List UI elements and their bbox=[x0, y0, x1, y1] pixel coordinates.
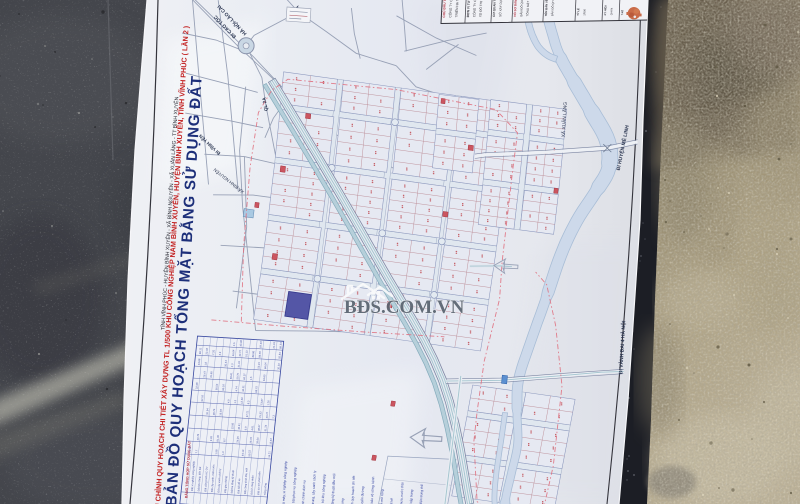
svg-text:87.49: 87.49 bbox=[259, 341, 263, 348]
svg-text:66.04: 66.04 bbox=[263, 362, 267, 369]
svg-text:16.93: 16.93 bbox=[218, 408, 222, 415]
svg-text:59.75: 59.75 bbox=[235, 372, 239, 379]
svg-text:94.19: 94.19 bbox=[241, 449, 245, 456]
svg-text:KÝ HIỆU: KÝ HIỆU bbox=[604, 5, 607, 16]
svg-text:42.72: 42.72 bbox=[238, 349, 242, 356]
svg-text:39.64: 39.64 bbox=[255, 437, 259, 444]
svg-text:43.96: 43.96 bbox=[239, 339, 243, 346]
svg-text:13.59: 13.59 bbox=[240, 397, 244, 404]
svg-text:26.76: 26.76 bbox=[249, 436, 253, 443]
svg-text:4.61: 4.61 bbox=[250, 425, 254, 431]
svg-text:1/500: 1/500 bbox=[582, 8, 586, 15]
svg-text:89.61: 89.61 bbox=[229, 372, 233, 379]
svg-text:73.87: 73.87 bbox=[260, 398, 264, 405]
svg-text:75.93: 75.93 bbox=[258, 411, 262, 418]
svg-text:35.33: 35.33 bbox=[276, 363, 280, 370]
svg-text:29.78: 29.78 bbox=[196, 433, 200, 440]
svg-text:9.93: 9.93 bbox=[209, 435, 213, 441]
svg-text:31.60: 31.60 bbox=[209, 371, 213, 378]
svg-text:1.26: 1.26 bbox=[266, 400, 270, 406]
svg-text:28.76: 28.76 bbox=[212, 408, 216, 415]
svg-text:31.01: 31.01 bbox=[237, 360, 241, 367]
svg-text:20.94: 20.94 bbox=[205, 408, 209, 415]
svg-text:98.07: 98.07 bbox=[257, 424, 261, 431]
svg-text:4.74: 4.74 bbox=[234, 386, 238, 392]
svg-text:13.06: 13.06 bbox=[230, 422, 234, 429]
svg-text:32.98: 32.98 bbox=[195, 382, 199, 389]
svg-text:86.55: 86.55 bbox=[258, 350, 262, 357]
svg-text:QH-04: QH-04 bbox=[610, 7, 613, 15]
svg-text:1.58: 1.58 bbox=[214, 449, 218, 455]
svg-text:92.84: 92.84 bbox=[277, 352, 281, 359]
svg-text:24.05: 24.05 bbox=[235, 436, 239, 443]
svg-text:23.27: 23.27 bbox=[265, 411, 269, 418]
svg-text:T.KẾ: T.KẾ bbox=[621, 9, 624, 15]
svg-text:51.13: 51.13 bbox=[244, 350, 248, 357]
svg-text:50.44: 50.44 bbox=[223, 360, 227, 367]
svg-text:44.31: 44.31 bbox=[241, 385, 245, 392]
svg-text:BĐS.COM.VN: BĐS.COM.VN bbox=[344, 297, 465, 318]
svg-text:56.52: 56.52 bbox=[214, 383, 218, 390]
svg-text:45.91: 45.91 bbox=[237, 423, 241, 430]
svg-text:88.75: 88.75 bbox=[254, 385, 258, 392]
svg-text:TÊN BẢN VẼ: TÊN BẢN VẼ bbox=[543, 0, 549, 16]
svg-text:92.16: 92.16 bbox=[200, 394, 204, 401]
svg-text:Tổng cộng: Tổng cộng bbox=[263, 482, 268, 495]
svg-text:63.37: 63.37 bbox=[242, 373, 246, 380]
svg-text:97.21: 97.21 bbox=[245, 410, 249, 417]
svg-text:BẢN ĐỒ QH: BẢN ĐỒ QH bbox=[549, 0, 555, 16]
svg-text:15.63: 15.63 bbox=[269, 438, 273, 445]
svg-text:51.24: 51.24 bbox=[263, 424, 267, 431]
svg-text:22.33: 22.33 bbox=[205, 347, 209, 354]
svg-text:23.68: 23.68 bbox=[197, 358, 201, 365]
svg-text:50.22: 50.22 bbox=[247, 449, 251, 456]
svg-text:90.16: 90.16 bbox=[221, 383, 225, 390]
svg-text:63.65: 63.65 bbox=[262, 374, 266, 381]
svg-text:73.33: 73.33 bbox=[188, 446, 192, 453]
svg-text:98.11: 98.11 bbox=[198, 347, 202, 354]
svg-text:53.01: 53.01 bbox=[257, 361, 261, 368]
svg-text:81.40: 81.40 bbox=[216, 434, 220, 441]
svg-text:21.01: 21.01 bbox=[272, 341, 276, 348]
svg-text:26.47: 26.47 bbox=[202, 370, 206, 377]
svg-text:14.21: 14.21 bbox=[267, 451, 271, 458]
svg-text:88.86: 88.86 bbox=[251, 350, 255, 357]
svg-text:89.54: 89.54 bbox=[278, 342, 282, 349]
svg-text:40.64: 40.64 bbox=[231, 349, 235, 356]
svg-text:7.20: 7.20 bbox=[211, 349, 215, 355]
